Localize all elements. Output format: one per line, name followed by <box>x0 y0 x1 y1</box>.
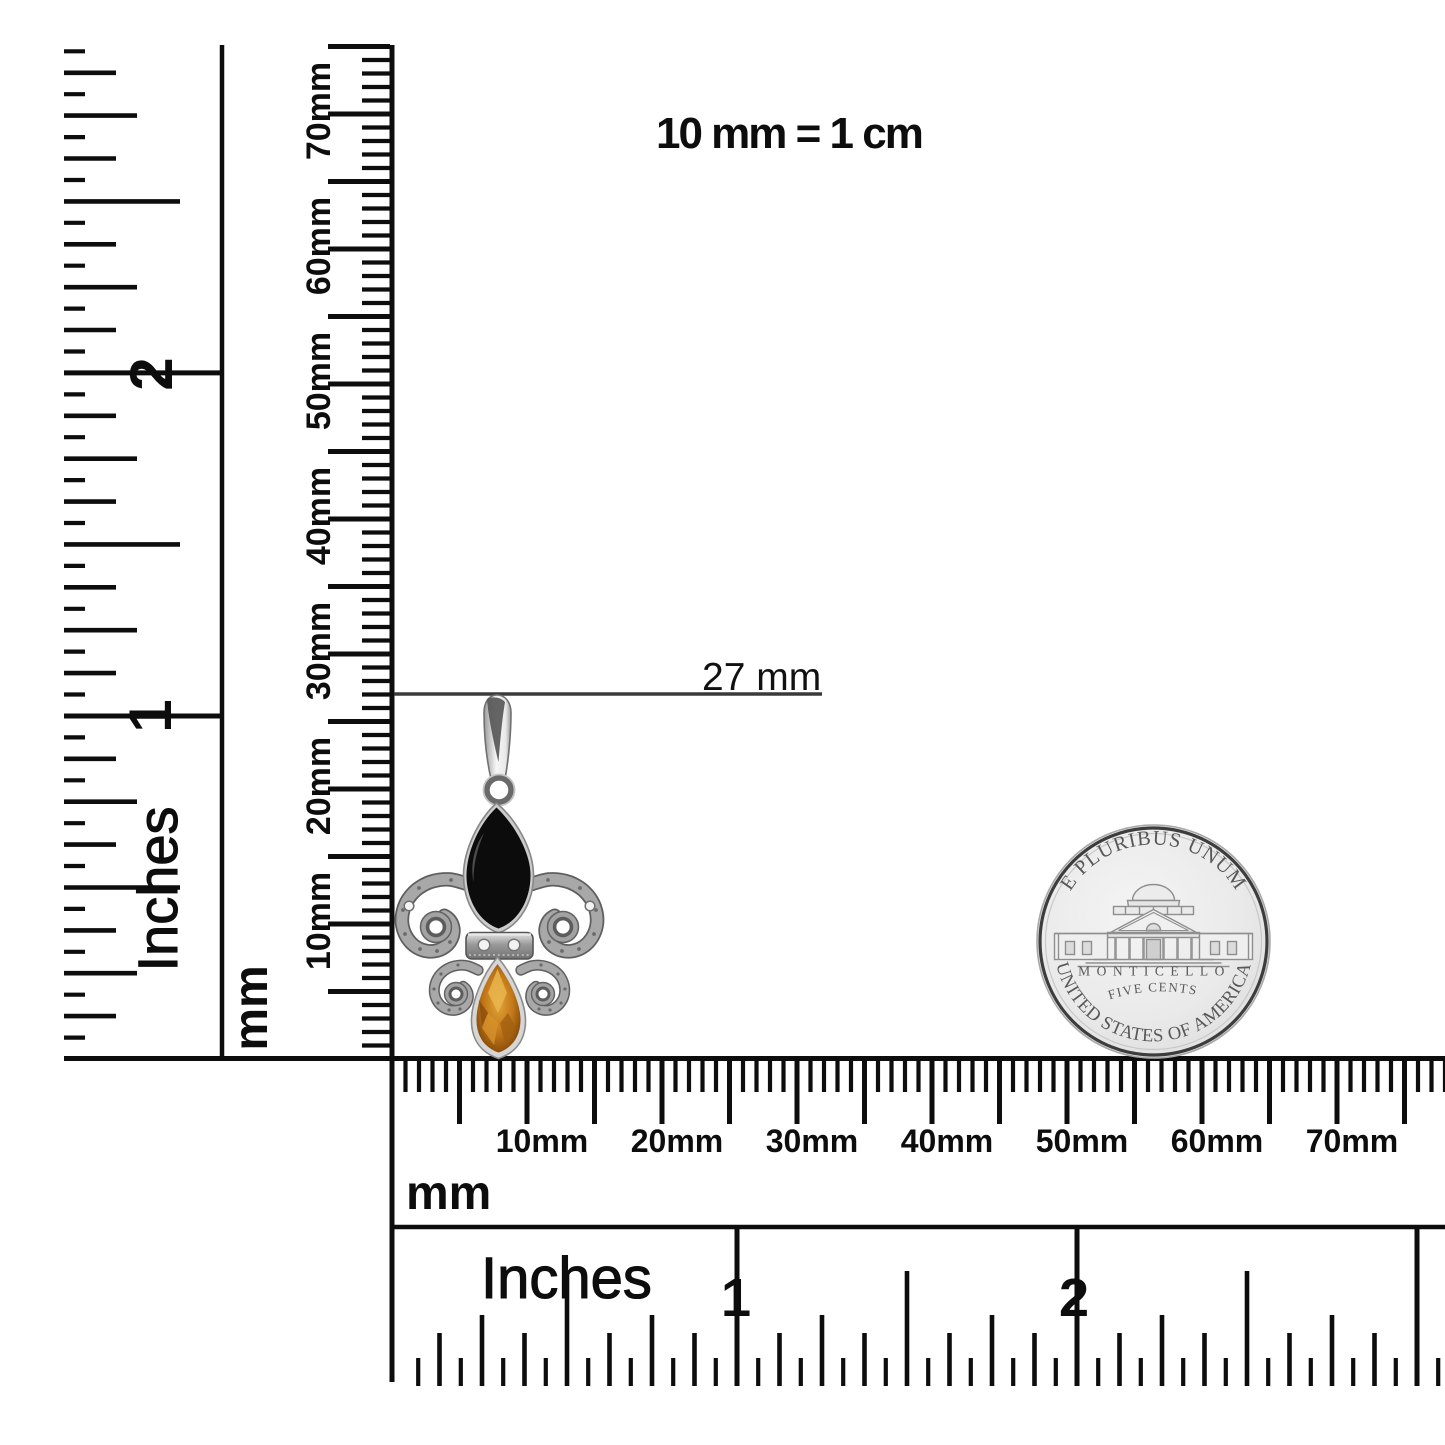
svg-text:20mm: 20mm <box>631 1123 724 1159</box>
svg-text:27 mm: 27 mm <box>702 656 821 699</box>
svg-text:Inches: Inches <box>126 807 189 972</box>
svg-text:10 mm = 1 cm: 10 mm = 1 cm <box>656 109 922 158</box>
svg-text:10mm: 10mm <box>496 1123 589 1159</box>
svg-text:60mm: 60mm <box>300 197 338 295</box>
svg-text:30mm: 30mm <box>766 1123 859 1159</box>
svg-text:Inches: Inches <box>481 1246 652 1311</box>
svg-text:2: 2 <box>118 357 185 390</box>
svg-text:50mm: 50mm <box>1036 1123 1129 1159</box>
svg-text:70mm: 70mm <box>1306 1123 1399 1159</box>
svg-text:30mm: 30mm <box>300 602 338 700</box>
svg-text:40mm: 40mm <box>300 467 338 565</box>
svg-text:MONTICELLO: MONTICELLO <box>1078 964 1231 979</box>
svg-text:1: 1 <box>117 699 184 732</box>
svg-text:70mm: 70mm <box>300 62 338 160</box>
svg-text:10mm: 10mm <box>300 872 338 970</box>
svg-text:20mm: 20mm <box>300 737 338 835</box>
svg-text:60mm: 60mm <box>1171 1123 1264 1159</box>
svg-text:mm: mm <box>406 1167 491 1220</box>
svg-text:2: 2 <box>1059 1268 1089 1328</box>
svg-text:50mm: 50mm <box>300 332 338 430</box>
svg-text:mm: mm <box>225 965 278 1050</box>
svg-text:40mm: 40mm <box>901 1123 994 1159</box>
svg-text:1: 1 <box>721 1268 751 1328</box>
